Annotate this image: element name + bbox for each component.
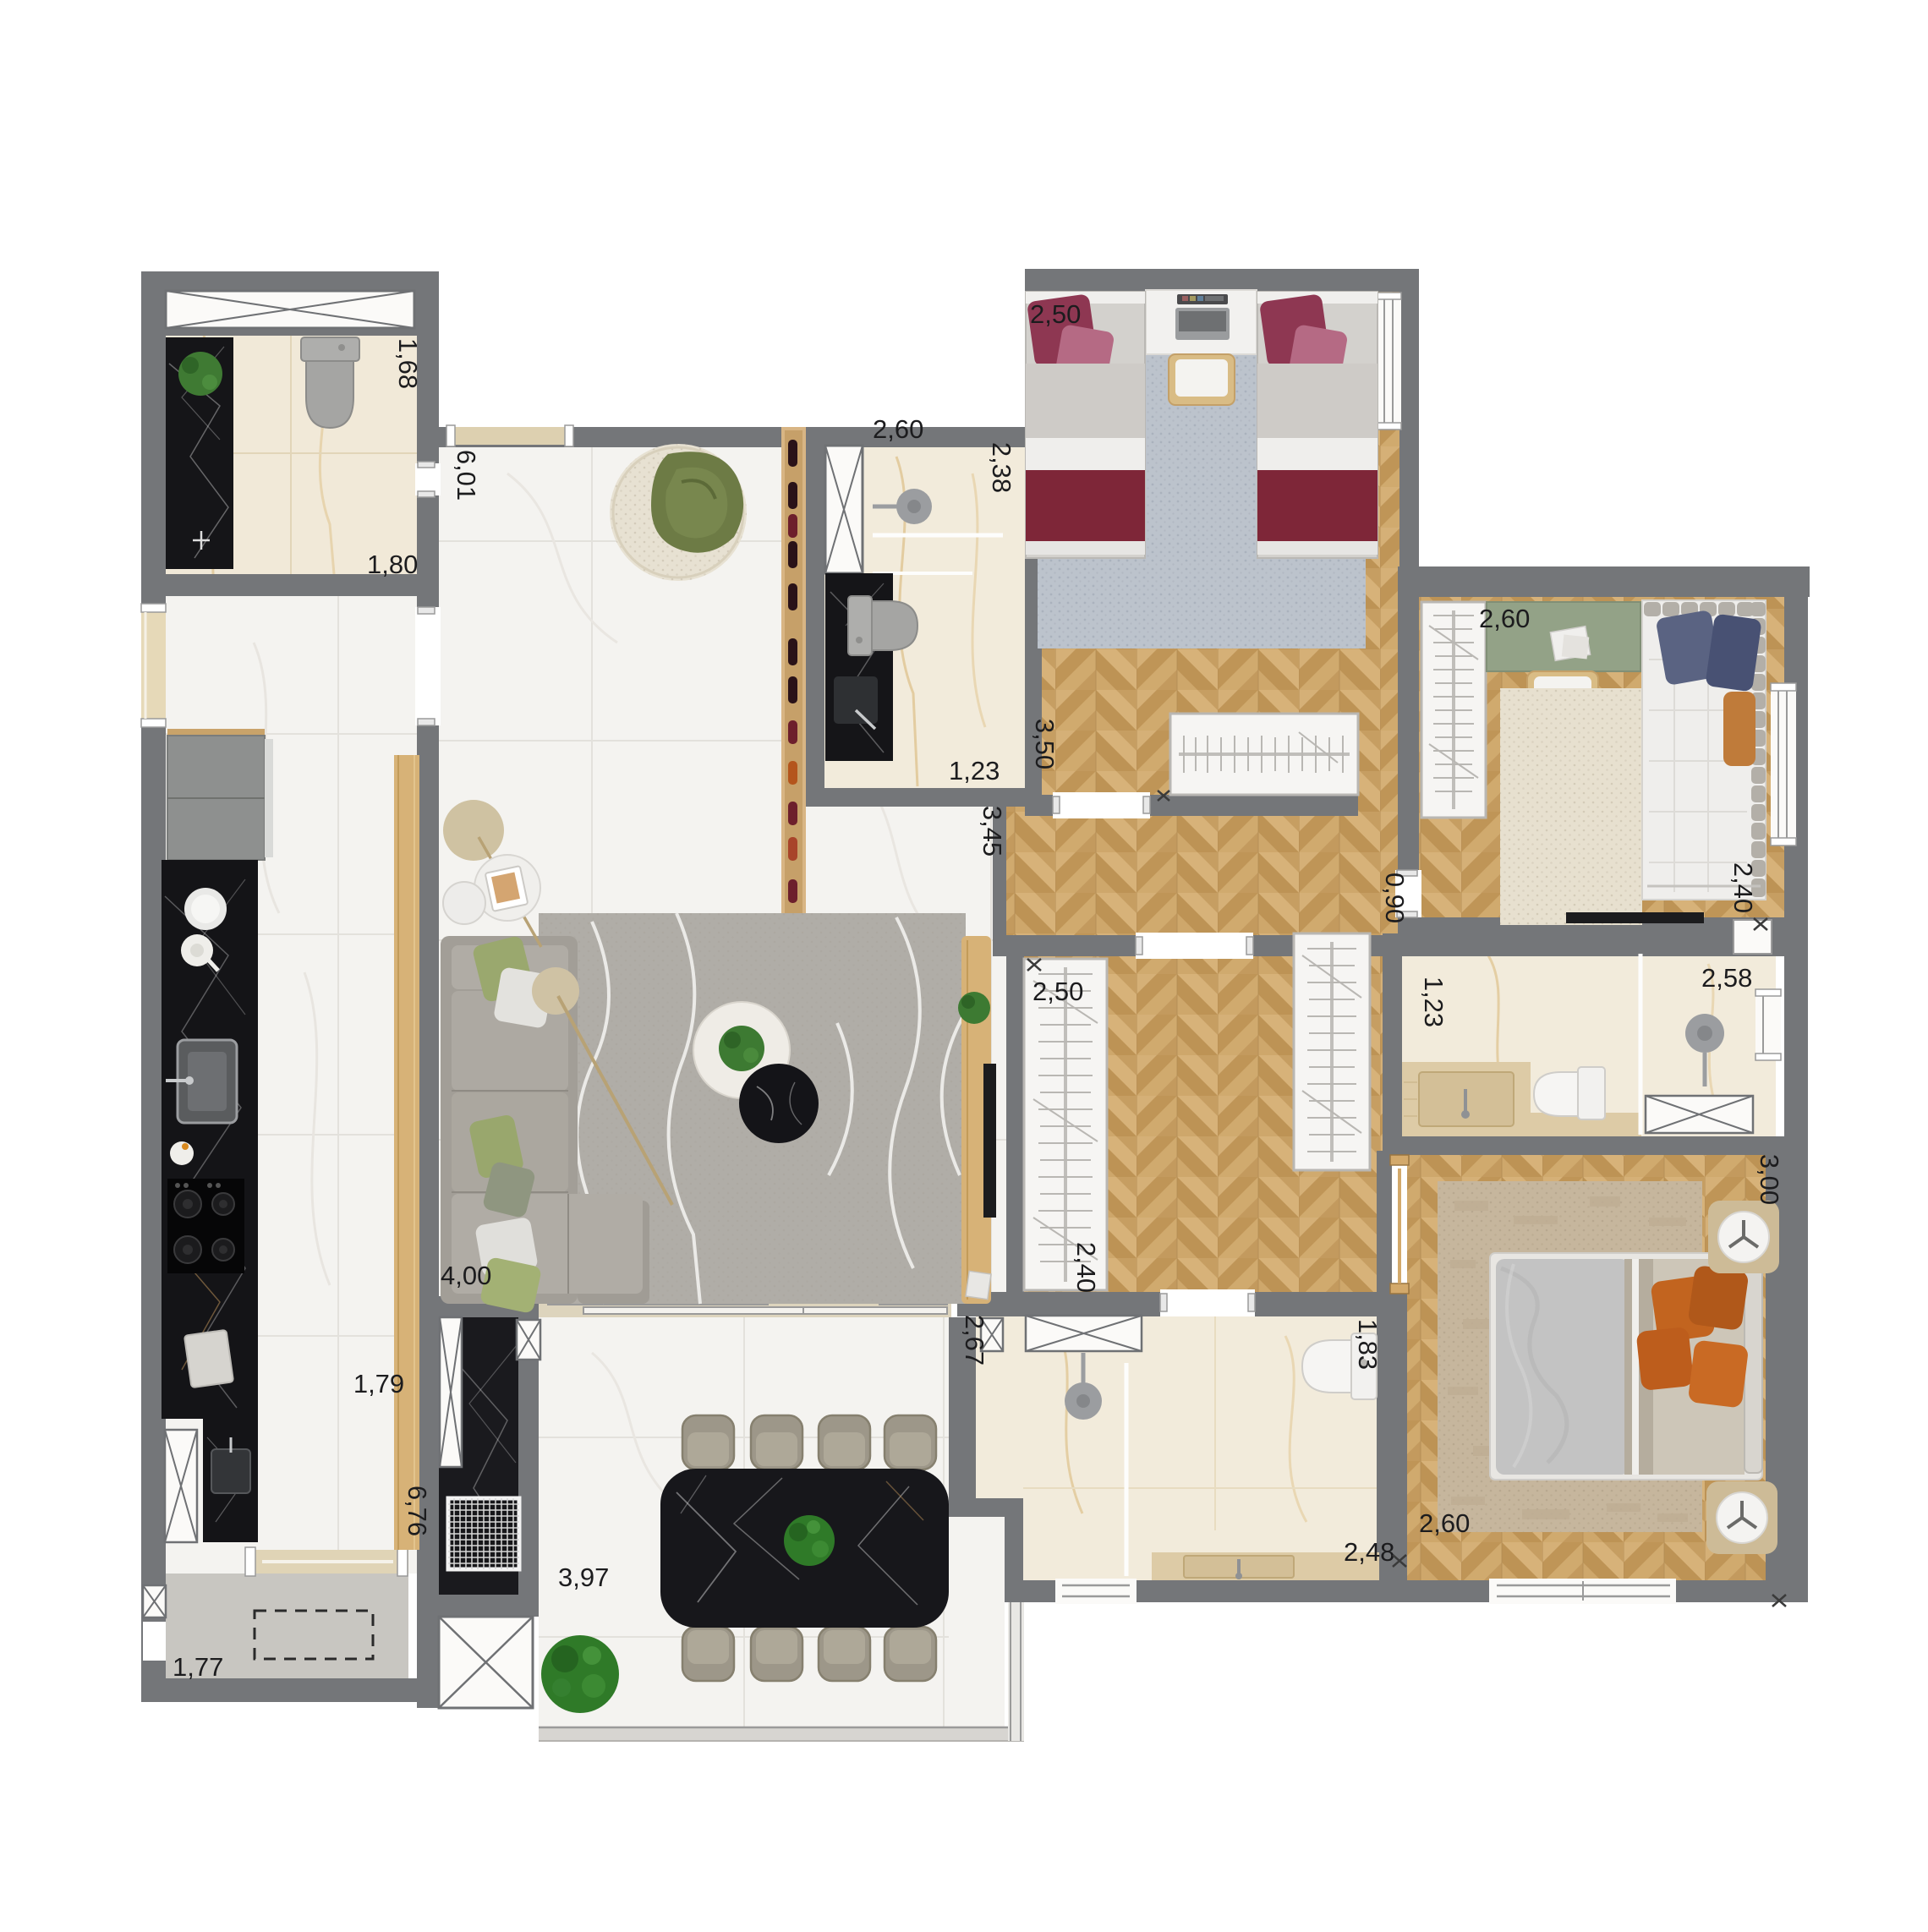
svg-text:2,60: 2,60 [1419, 1508, 1470, 1538]
svg-text:3,97: 3,97 [558, 1563, 609, 1592]
svg-text:1,23: 1,23 [949, 756, 1000, 785]
svg-text:1,80: 1,80 [367, 550, 418, 579]
svg-text:1,68: 1,68 [393, 338, 423, 389]
svg-text:1,23: 1,23 [1419, 977, 1449, 1027]
svg-text:2,50: 2,50 [1030, 299, 1081, 329]
svg-text:2,60: 2,60 [873, 414, 923, 444]
svg-text:2,60: 2,60 [1479, 604, 1530, 633]
svg-text:3,45: 3,45 [978, 806, 1007, 857]
svg-text:2,58: 2,58 [1701, 963, 1752, 993]
svg-text:1,77: 1,77 [173, 1652, 223, 1682]
svg-text:2,50: 2,50 [1032, 977, 1083, 1006]
svg-text:2,40: 2,40 [1071, 1242, 1101, 1293]
svg-text:3,50: 3,50 [1030, 719, 1060, 769]
svg-text:3,00: 3,00 [1755, 1154, 1784, 1205]
svg-text:6,76: 6,76 [403, 1486, 432, 1536]
svg-text:2,48: 2,48 [1344, 1537, 1394, 1567]
svg-text:2,38: 2,38 [987, 442, 1016, 493]
svg-text:2,40: 2,40 [1728, 862, 1758, 913]
svg-text:6,01: 6,01 [452, 450, 481, 501]
svg-text:2,67: 2,67 [960, 1315, 989, 1366]
svg-text:0,90: 0,90 [1380, 873, 1410, 923]
svg-text:1,83: 1,83 [1353, 1319, 1383, 1370]
svg-text:4,00: 4,00 [441, 1261, 491, 1290]
svg-text:1,79: 1,79 [353, 1369, 404, 1398]
